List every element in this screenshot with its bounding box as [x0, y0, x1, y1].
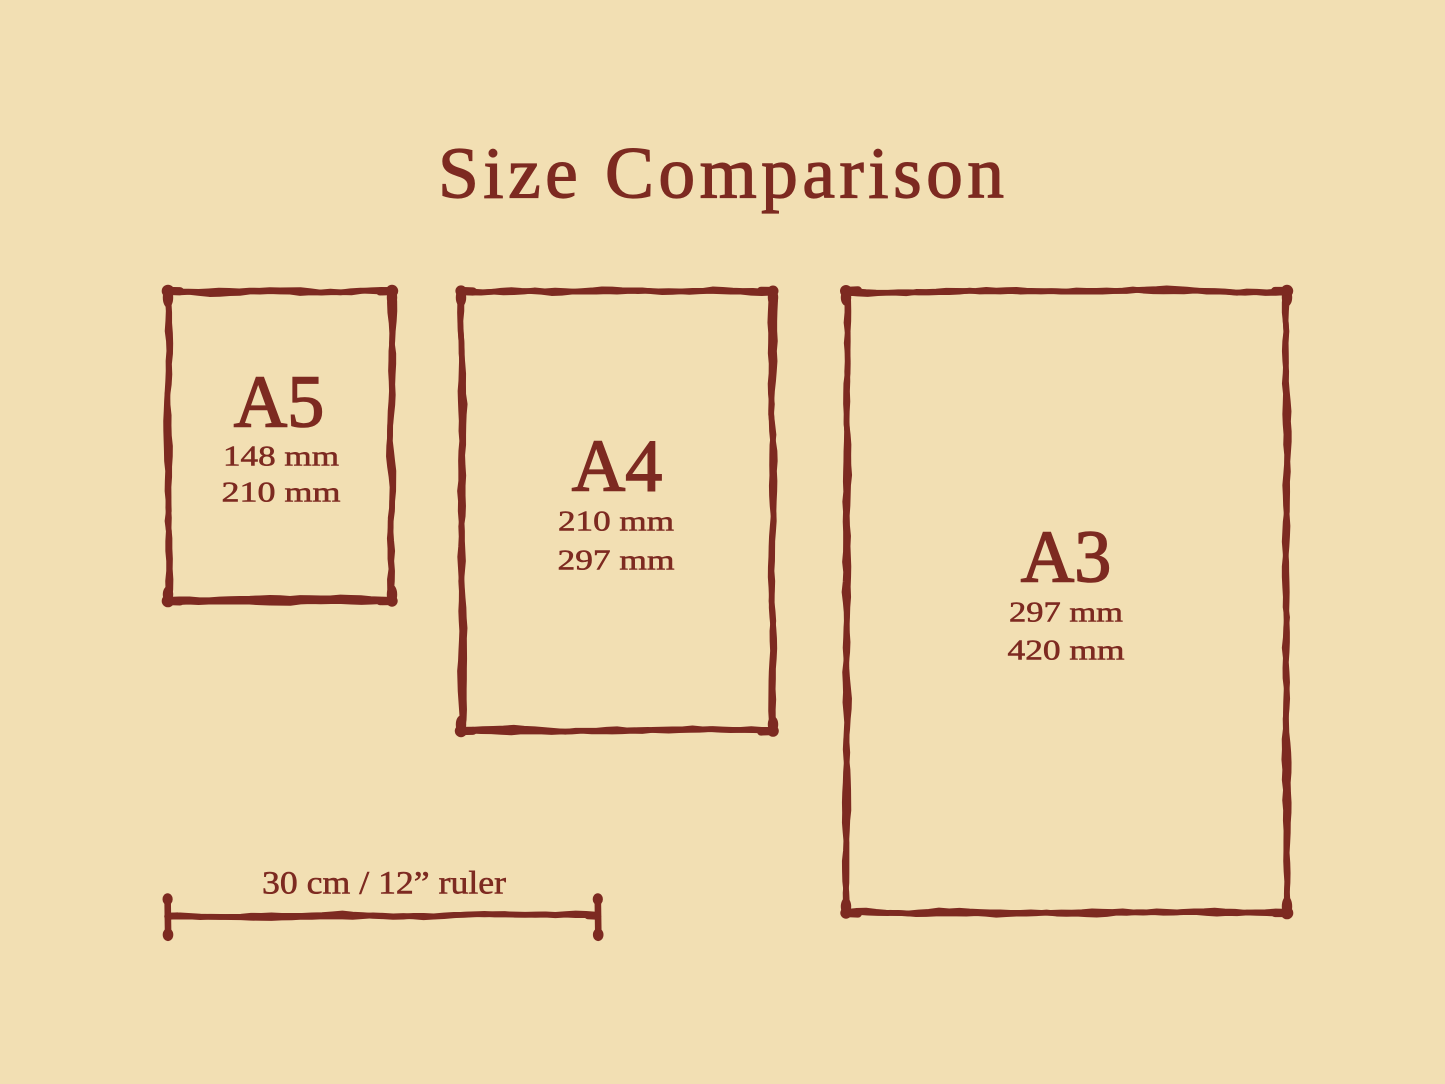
svg-text:A5: A5	[234, 362, 324, 444]
svg-text:30 cm / 12” ruler: 30 cm / 12” ruler	[262, 865, 506, 901]
svg-text:Size Comparison: Size Comparison	[438, 133, 1004, 214]
svg-text:A3: A3	[1021, 517, 1111, 599]
svg-text:A4: A4	[572, 426, 662, 508]
svg-text:210 mm: 210 mm	[558, 507, 674, 538]
svg-text:297 mm: 297 mm	[558, 546, 675, 577]
svg-text:210 mm: 210 mm	[222, 478, 341, 509]
svg-text:297 mm: 297 mm	[1009, 598, 1123, 629]
svg-text:420 mm: 420 mm	[1008, 636, 1125, 667]
svg-text:148 mm: 148 mm	[223, 442, 339, 473]
